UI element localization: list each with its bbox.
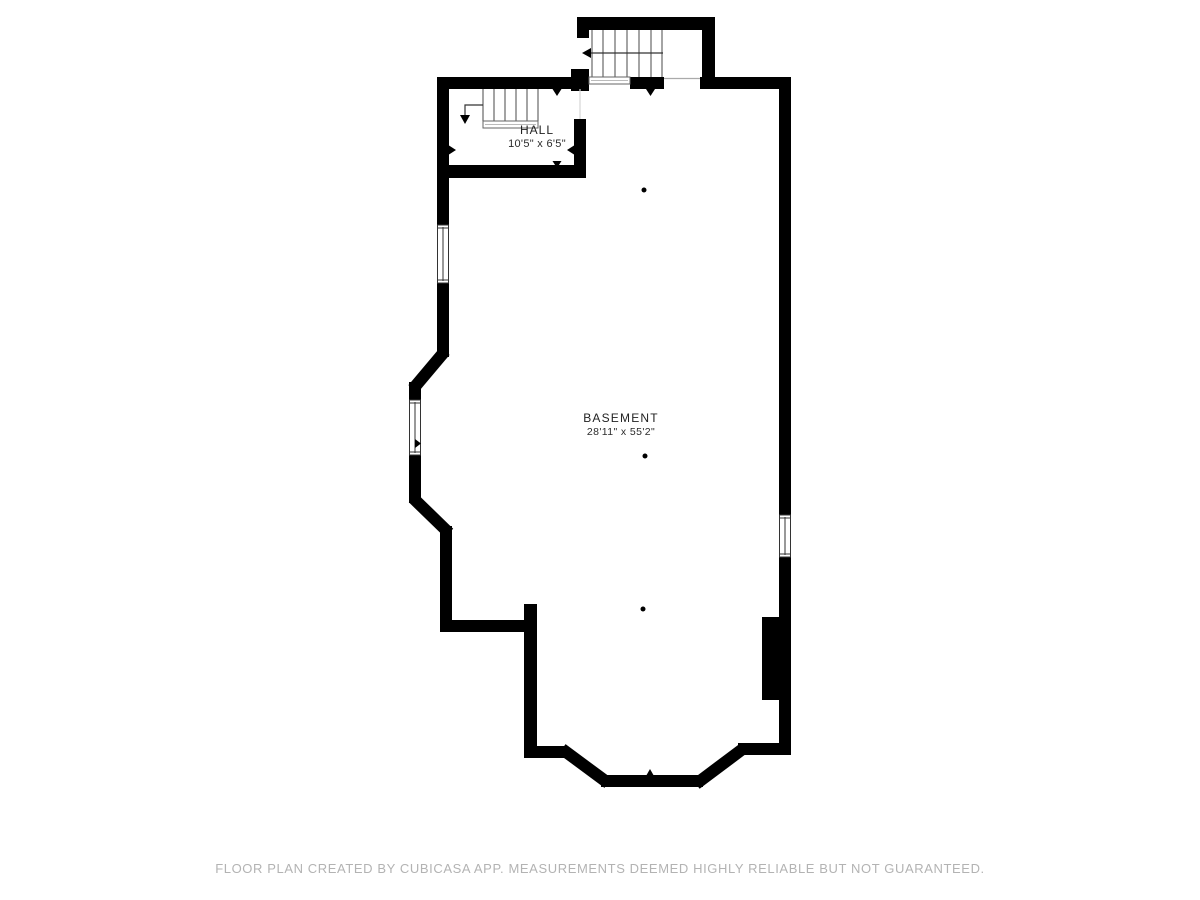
wall-segment	[440, 620, 536, 632]
footer-disclaimer: FLOOR PLAN CREATED BY CUBICASA APP. MEAS…	[215, 861, 985, 876]
reference-dot	[642, 188, 647, 193]
room-name: BASEMENT	[583, 412, 659, 426]
wall-segment	[437, 165, 586, 178]
wall-tick	[646, 89, 655, 96]
wall-segment	[577, 17, 715, 30]
walls-group	[409, 17, 791, 787]
window	[780, 515, 791, 557]
room-dimensions: 28'11" x 55'2"	[583, 426, 659, 438]
wall-segment	[574, 119, 586, 178]
wall-segment	[437, 77, 449, 225]
wall-segment	[779, 77, 791, 515]
wall-segment	[700, 77, 791, 89]
staircase-upper	[582, 30, 663, 84]
wall-tick	[449, 146, 456, 155]
floor-plan-page: HALL 10'5" x 6'5" BASEMENT 28'11" x 55'2…	[0, 0, 1200, 900]
wall-segment	[524, 604, 537, 754]
stair-direction-line	[465, 105, 483, 116]
stair-treads	[483, 89, 538, 121]
wall-segment	[437, 283, 449, 357]
room-dimensions: 10'5" x 6'5"	[508, 138, 566, 151]
wall-segment	[409, 382, 421, 400]
wall-tick	[553, 89, 562, 96]
wall-segment	[440, 526, 452, 632]
wall-segment	[630, 77, 664, 89]
reference-dot	[641, 607, 646, 612]
stair-direction-arrow	[460, 115, 470, 124]
wall-segment-diagonal	[696, 748, 744, 784]
windows-group	[410, 225, 791, 557]
reference-dot	[643, 454, 648, 459]
room-label-basement: BASEMENT 28'11" x 55'2"	[583, 412, 659, 438]
room-label-hall: HALL 10'5" x 6'5"	[508, 124, 566, 150]
floor-plan-drawing	[0, 0, 1200, 900]
wall-segment	[601, 775, 703, 787]
wall-tick	[646, 769, 654, 776]
reference-dots-group	[641, 188, 648, 612]
wall-segment	[437, 77, 584, 89]
room-name: HALL	[508, 124, 566, 138]
stair-direction-arrow	[582, 48, 591, 58]
window	[438, 225, 449, 283]
wall-segment	[577, 17, 589, 38]
chimney-block	[762, 617, 791, 700]
wall-tick	[567, 146, 574, 155]
